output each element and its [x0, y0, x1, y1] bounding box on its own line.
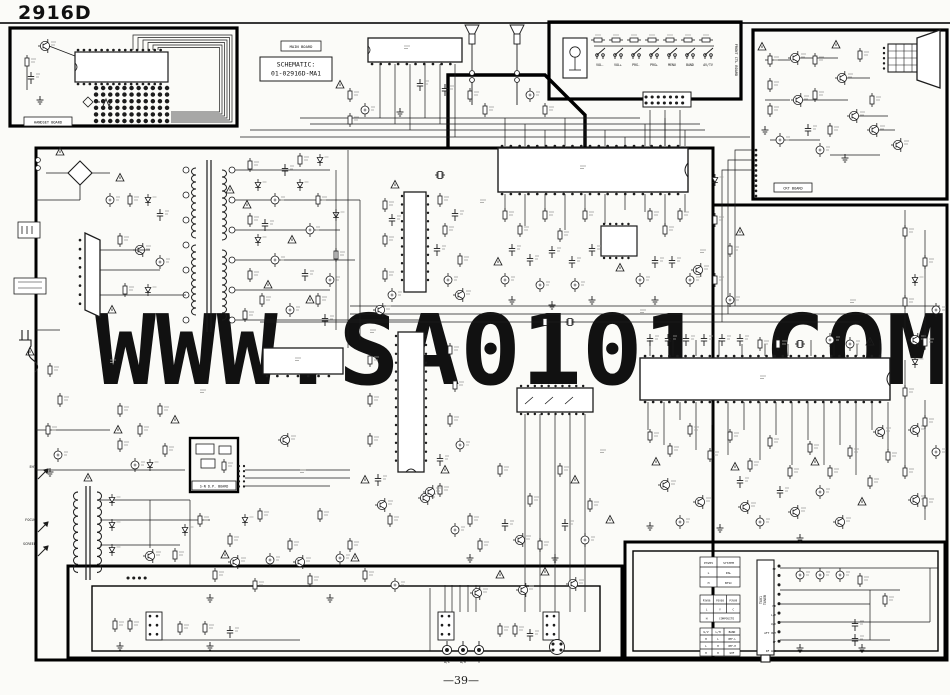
svg-text:P3V09: P3V09	[729, 599, 737, 603]
svg-text:MB: MB	[773, 604, 777, 608]
handset-board-label: HANDSET BOARD	[34, 121, 62, 125]
svg-text:NTSC: NTSC	[725, 581, 732, 585]
table-band: U/V L/H BAND H L VHF-L L H VHF-H H H UHF	[700, 628, 740, 656]
svg-text:RF AGC: RF AGC	[766, 649, 776, 653]
speakers	[465, 25, 524, 105]
signal-tables: P3V05 SYSTEM L PAL H NTSC P3V06 P3V08 P3…	[700, 557, 740, 656]
svg-text:A/R: A/R	[460, 660, 467, 664]
crt-board-label: CRT BOARD	[783, 187, 802, 191]
schematic-id-box: SCHEMATIC: 01-02916D-MA1	[260, 57, 332, 81]
svg-text:AV/TV: AV/TV	[703, 63, 713, 67]
main-board-label: MAIN BOARD	[290, 44, 314, 49]
table-input: P3V06 P3V08 P3V09 L Y C H COMPOSITE	[700, 595, 740, 622]
svg-text:L/H: L/H	[715, 630, 720, 634]
svg-text:MENU: MENU	[668, 63, 676, 67]
svg-text:UHF: UHF	[730, 651, 735, 655]
svg-text:U/V: U/V	[771, 622, 776, 626]
sndp-board-label: S-N D.P. BOARD	[200, 485, 229, 489]
tuner-section	[757, 560, 894, 662]
svg-text:PAL: PAL	[726, 571, 732, 575]
svg-text:01-02916D-MA1: 01-02916D-MA1	[271, 70, 321, 78]
front-ctl-board-section	[563, 35, 714, 107]
svg-text:P3V06: P3V06	[703, 599, 711, 603]
svg-text:L: L	[708, 571, 710, 575]
svg-text:P3V05: P3V05	[704, 561, 713, 565]
schematic-drawing: WWW.SA0101.COM 2916D	[0, 0, 950, 695]
svg-text:L/H: L/H	[771, 613, 776, 617]
schematic-page: WWW.SA0101.COM 2916D	[0, 0, 950, 695]
crt-board-section	[756, 30, 940, 196]
svg-text:VOL-: VOL-	[596, 63, 604, 67]
svg-text:VHF-L: VHF-L	[728, 637, 736, 641]
table-system: P3V05 SYSTEM L PAL H NTSC	[700, 557, 740, 587]
svg-text:BP: BP	[773, 567, 777, 571]
svg-text:BAND: BAND	[729, 630, 736, 634]
svg-text:SCREEN: SCREEN	[23, 542, 36, 546]
handset-board-section	[25, 35, 232, 122]
svg-text:U/V: U/V	[703, 630, 708, 634]
svg-text:VHF-H: VHF-H	[728, 644, 736, 648]
svg-text:COMPOSITE: COMPOSITE	[719, 617, 734, 621]
page-title: 2916D	[18, 2, 92, 24]
svg-text:A/L: A/L	[444, 660, 450, 664]
svg-text:IF: IF	[773, 640, 777, 644]
flyback-section	[38, 469, 146, 580]
svg-text:H: H	[708, 581, 710, 585]
svg-text:FOCUS: FOCUS	[25, 518, 36, 522]
svg-text:TUNER: TUNER	[763, 594, 767, 605]
svg-text:EHT: EHT	[30, 465, 37, 469]
svg-text:BAND: BAND	[686, 63, 694, 67]
svg-text:AFT OUT: AFT OUT	[764, 631, 776, 635]
svg-text:V: V	[478, 660, 480, 664]
svg-text:PRG-: PRG-	[632, 63, 640, 67]
front-button-labels: VOL- VOL+ PRG- PRG+ MENU BAND AV/TV	[596, 63, 713, 67]
av-board-section	[113, 612, 565, 655]
svg-text:SYSTEM: SYSTEM	[723, 561, 734, 565]
svg-text:SCHEMATIC:: SCHEMATIC:	[277, 61, 315, 69]
svg-text:VOL+: VOL+	[614, 63, 622, 67]
svg-text:P3V08: P3V08	[716, 599, 724, 603]
svg-text:PRG+: PRG+	[650, 63, 658, 67]
page-number: —39—	[443, 674, 479, 687]
front-board-label: FRONT CTL BOARD	[734, 44, 738, 76]
